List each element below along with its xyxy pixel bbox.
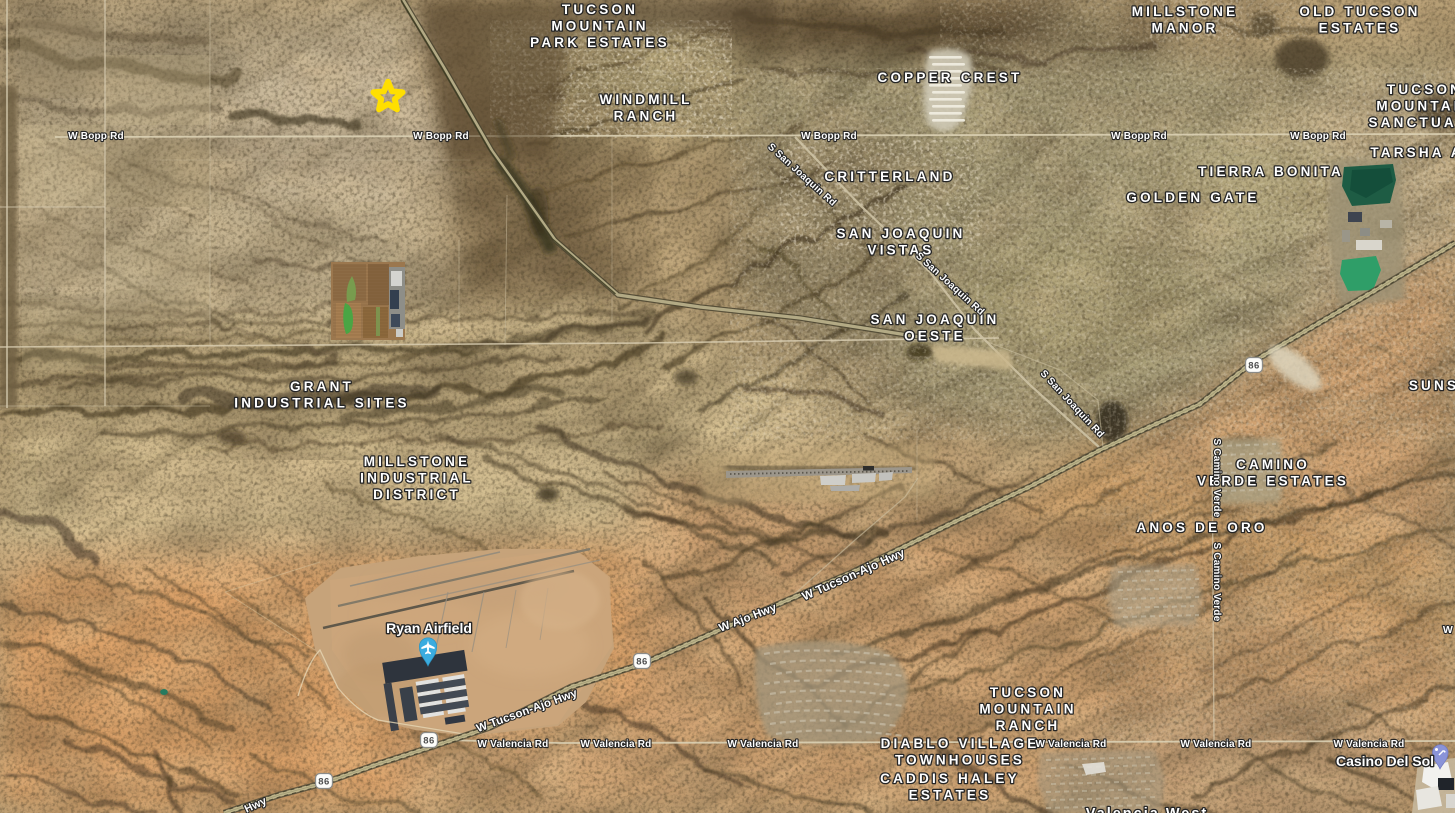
svg-text:W Valencia Rd: W Valencia Rd: [1036, 739, 1107, 750]
svg-text:COPPER CREST: COPPER CREST: [878, 70, 1023, 85]
svg-text:ANOS DE ORO: ANOS DE ORO: [1136, 520, 1267, 535]
svg-text:W Valencia Rd: W Valencia Rd: [1181, 739, 1252, 750]
svg-text:86: 86: [1248, 360, 1260, 371]
svg-text:DIABLO VILLAGETOWNHOUSES: DIABLO VILLAGETOWNHOUSES: [881, 736, 1040, 768]
svg-text:S Camino Verde: S Camino Verde: [1211, 439, 1222, 518]
svg-text:TIERRA BONITA: TIERRA BONITA: [1198, 164, 1344, 179]
svg-text:86: 86: [423, 735, 435, 746]
svg-text:CRITTERLAND: CRITTERLAND: [824, 169, 955, 184]
svg-text:W Valencia Rd: W Valencia Rd: [728, 739, 799, 750]
svg-text:MILLSTONEINDUSTRIALDISTRICT: MILLSTONEINDUSTRIALDISTRICT: [360, 454, 474, 502]
svg-text:W Valencia Rd: W Valencia Rd: [478, 739, 549, 750]
svg-text:Casino Del Sol: Casino Del Sol: [1336, 753, 1434, 769]
svg-text:W Bopp Rd: W Bopp Rd: [413, 131, 469, 142]
svg-text:SUNS: SUNS: [1409, 378, 1455, 393]
svg-text:86: 86: [318, 776, 330, 787]
svg-text:S Camino Verde: S Camino Verde: [1211, 543, 1222, 622]
svg-text:86: 86: [636, 656, 648, 667]
svg-text:Valencia West: Valencia West: [1086, 806, 1208, 813]
svg-text:W Valencia Rd: W Valencia Rd: [1443, 624, 1455, 636]
svg-text:Ryan Airfield: Ryan Airfield: [386, 620, 472, 636]
svg-text:W Bopp Rd: W Bopp Rd: [68, 131, 124, 142]
svg-text:W Valencia Rd: W Valencia Rd: [581, 739, 652, 750]
svg-text:W Bopp Rd: W Bopp Rd: [1290, 131, 1346, 142]
svg-text:TARSHA A: TARSHA A: [1370, 145, 1455, 160]
svg-text:W Valencia Rd: W Valencia Rd: [1334, 739, 1405, 750]
svg-text:W Bopp Rd: W Bopp Rd: [1111, 131, 1167, 142]
svg-text:GOLDEN GATE: GOLDEN GATE: [1126, 190, 1259, 205]
svg-text:W Bopp Rd: W Bopp Rd: [801, 131, 857, 142]
